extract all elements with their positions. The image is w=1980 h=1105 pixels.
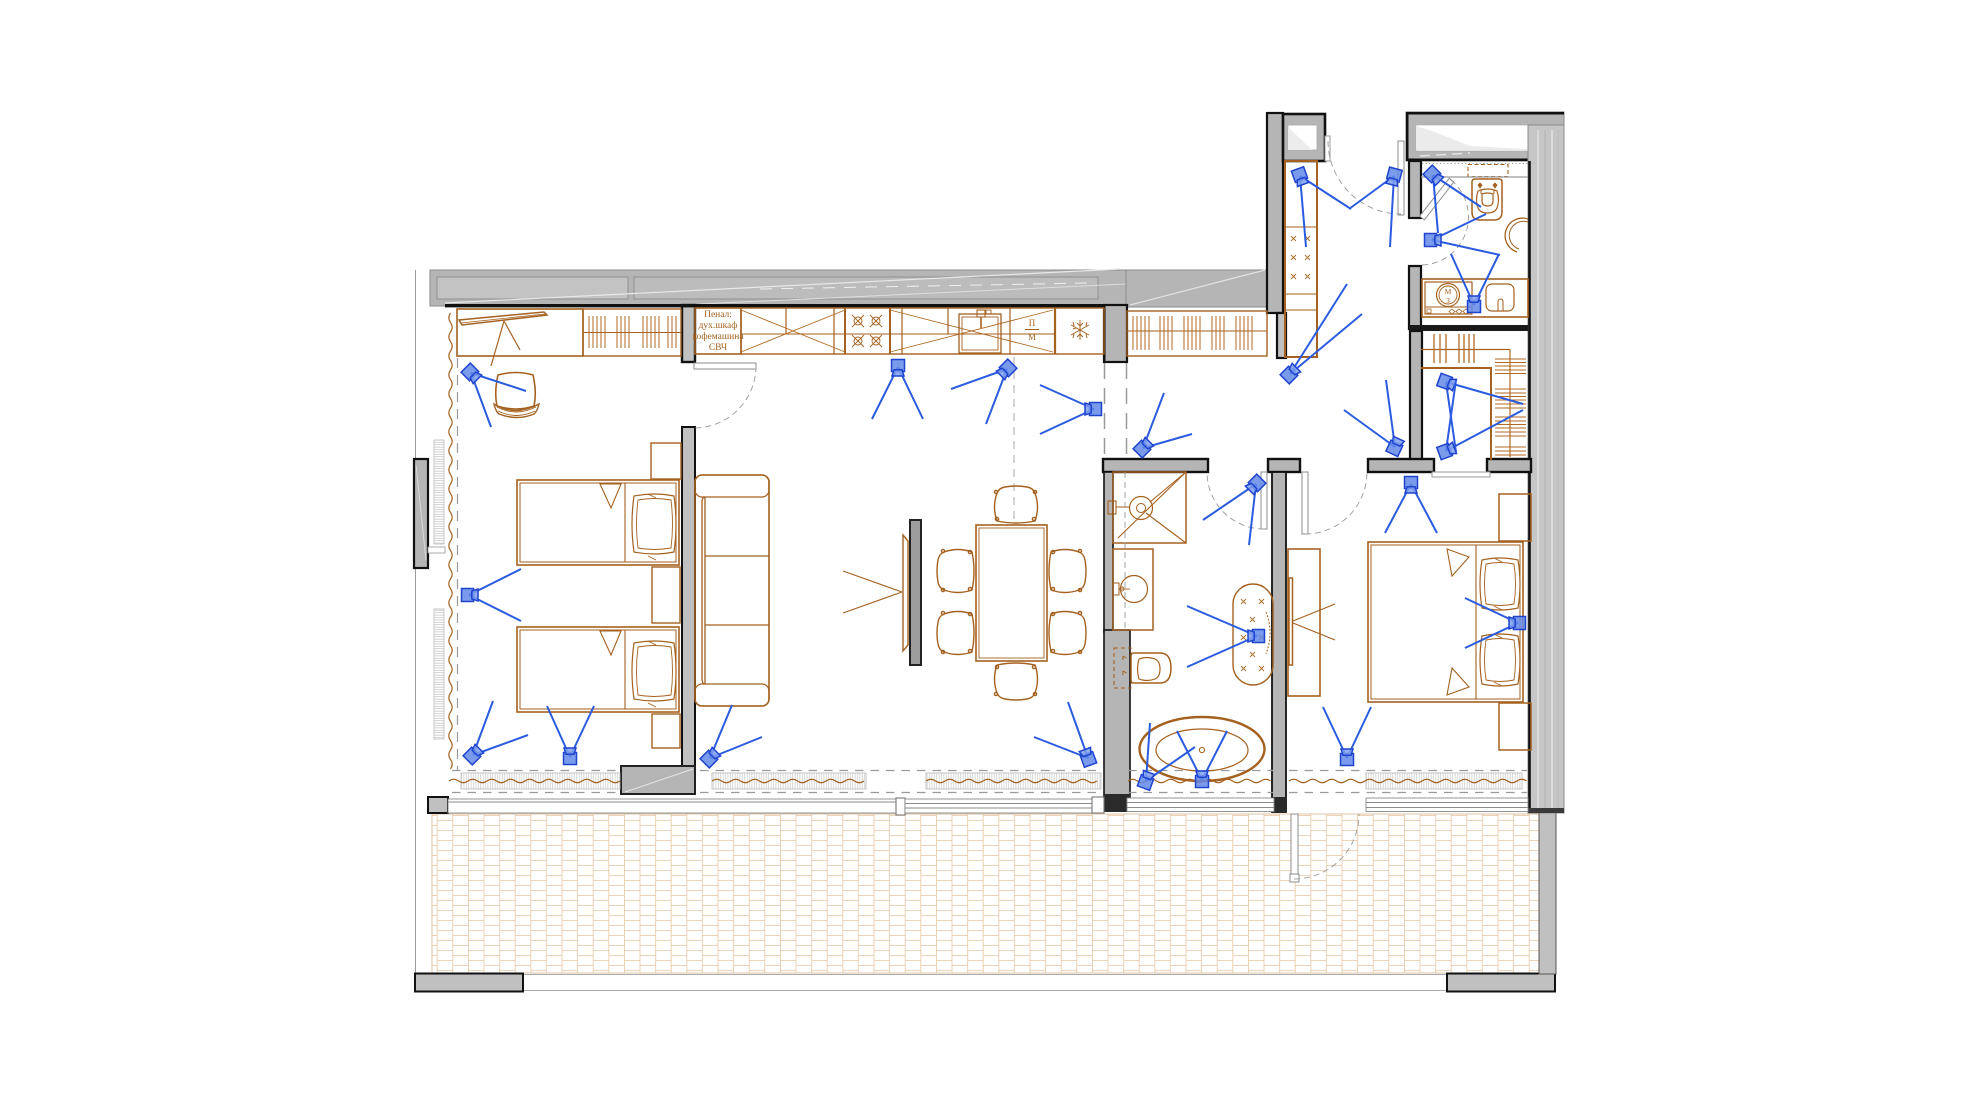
svg-text:СВЧ: СВЧ xyxy=(709,343,727,353)
svg-text:М: М xyxy=(1445,287,1452,296)
svg-text:З: З xyxy=(1446,296,1450,305)
svg-text:М: М xyxy=(1028,332,1036,342)
svg-text:Пенал:: Пенал: xyxy=(704,310,732,320)
svg-text:кофемашина: кофемашина xyxy=(692,331,744,342)
svg-text:дух.шкаф: дух.шкаф xyxy=(699,320,738,331)
svg-text:П: П xyxy=(1029,318,1036,328)
